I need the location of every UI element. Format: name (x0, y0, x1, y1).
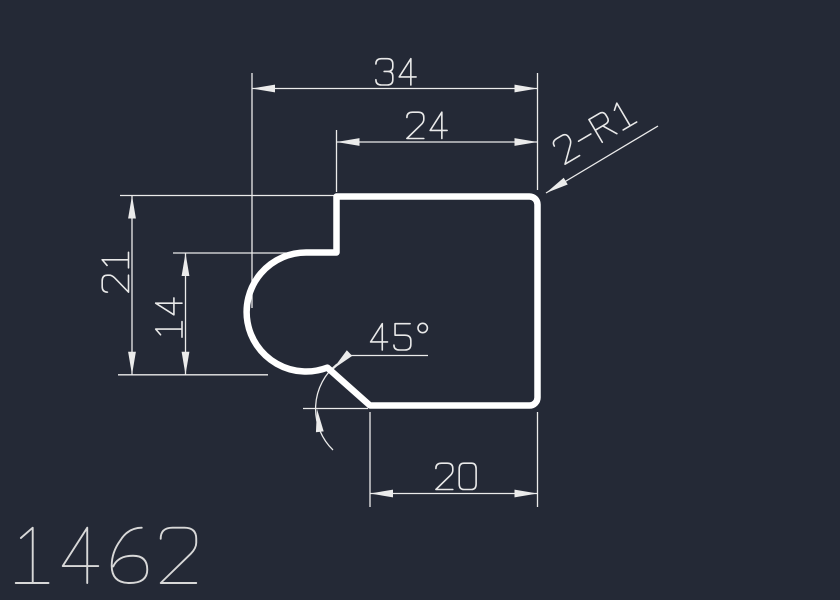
cad-viewport[interactable] (0, 0, 840, 600)
canvas-background (0, 0, 840, 600)
cad-canvas[interactable] (0, 0, 840, 600)
